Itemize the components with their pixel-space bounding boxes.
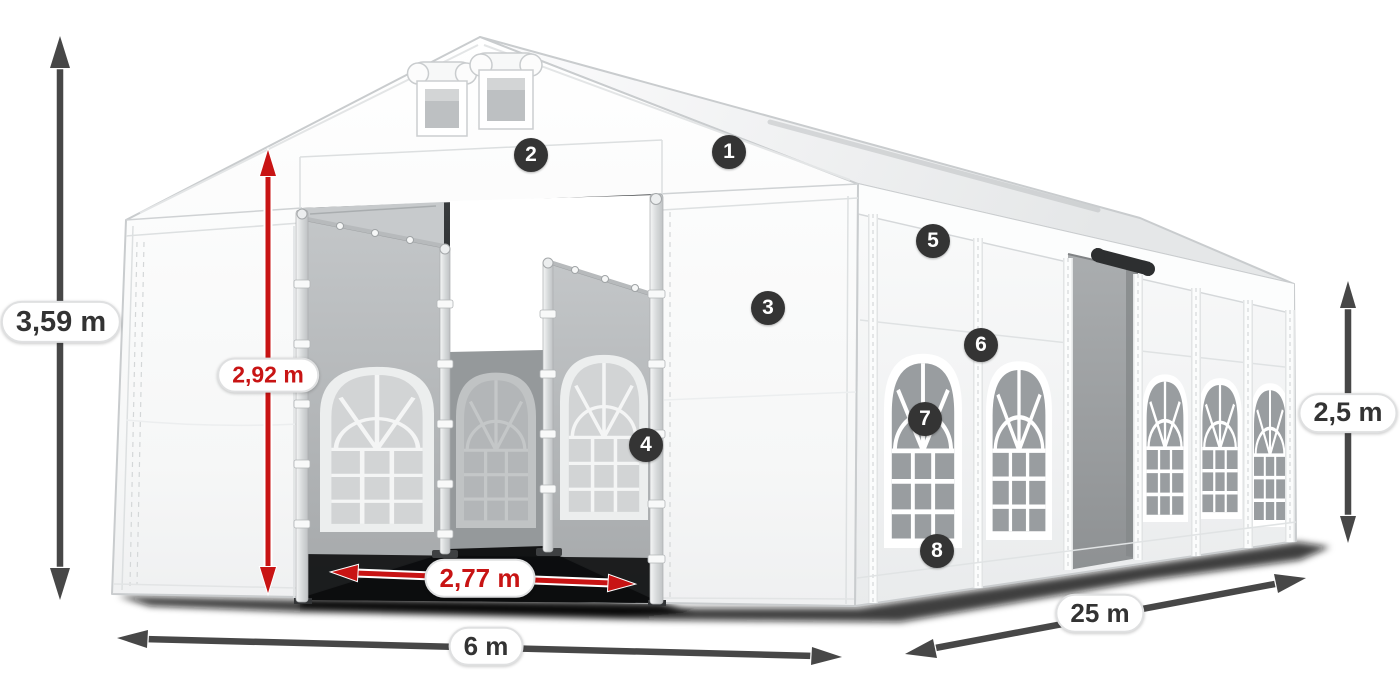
callout-badge-7: 7 bbox=[908, 402, 942, 436]
dimension-label-entrance-width: 2,77 m bbox=[425, 559, 536, 598]
callout-badge-1: 1 bbox=[712, 135, 746, 169]
entrance-left-door bbox=[302, 218, 446, 597]
dimension-label-front-width: 6 m bbox=[449, 627, 524, 666]
callout-badge-3: 3 bbox=[751, 291, 785, 325]
callout-badge-4: 4 bbox=[629, 428, 663, 462]
tent-dimensions-diagram: 3,59 m 2,92 m 2,77 m 6 m 25 m 2,5 m 1 2 … bbox=[0, 0, 1400, 700]
callout-badge-5: 5 bbox=[916, 224, 950, 258]
far-end-door bbox=[448, 350, 544, 549]
callout-badge-6: 6 bbox=[964, 328, 998, 362]
left-door-mesh-window bbox=[320, 367, 434, 532]
side-window-2 bbox=[986, 361, 1052, 540]
dimension-label-side-length: 25 m bbox=[1055, 594, 1144, 633]
callout-badge-8: 8 bbox=[920, 534, 954, 568]
side-window-5 bbox=[1250, 383, 1290, 527]
side-window-3 bbox=[1142, 374, 1188, 522]
dimension-label-side-height: 2,5 m bbox=[1298, 393, 1397, 433]
tent-illustration bbox=[0, 0, 1400, 700]
dimension-label-entrance-height: 2,92 m bbox=[217, 358, 319, 393]
entrance bbox=[294, 194, 666, 607]
dimension-label-total-height: 3,59 m bbox=[1, 301, 121, 343]
side-window-4 bbox=[1198, 378, 1242, 519]
side-window-1 bbox=[884, 354, 962, 548]
callout-badge-2: 2 bbox=[514, 138, 548, 172]
